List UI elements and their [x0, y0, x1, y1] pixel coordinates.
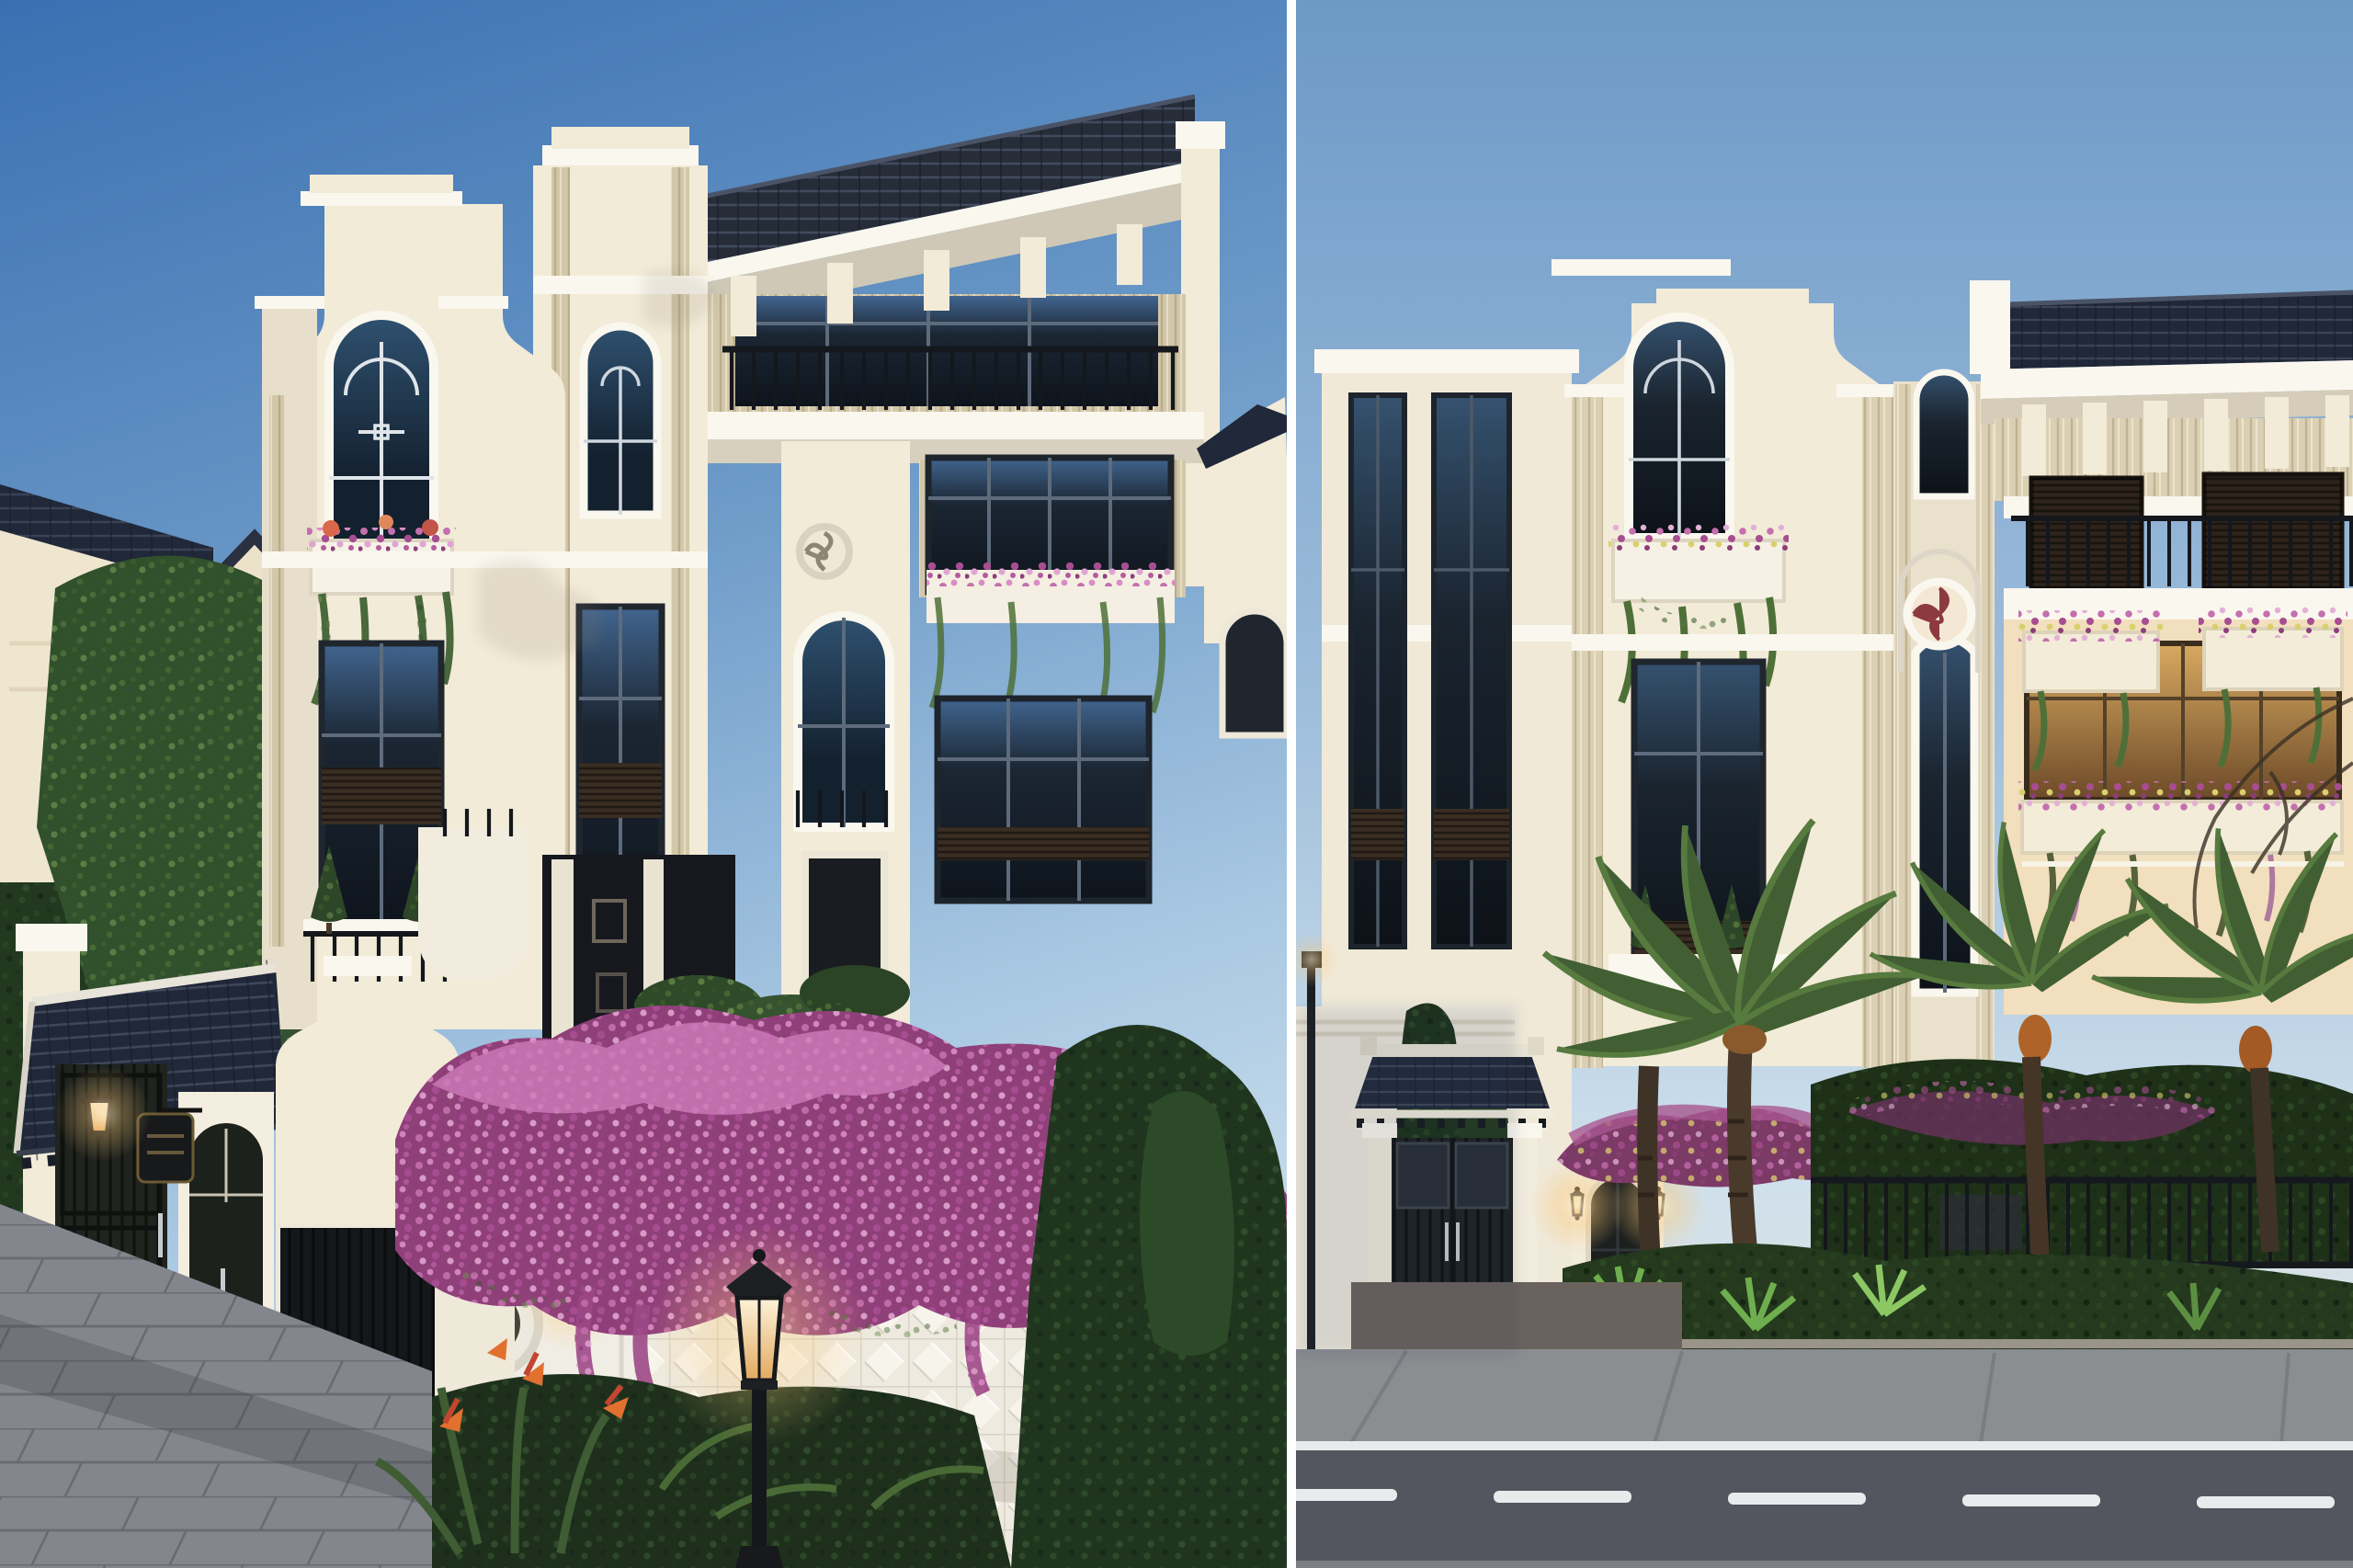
dusk-shadow [1296, 1006, 1517, 1356]
entrance-tower [781, 441, 910, 1029]
road-edge-line [1296, 1441, 2353, 1450]
sidewalk [1296, 1349, 2353, 1443]
asphalt-road [1296, 1450, 2353, 1568]
left-render-photo [0, 0, 1287, 1568]
right-render-svg [1296, 0, 2353, 1568]
right-render-photo [1296, 0, 2353, 1568]
road-bottom-strip [1296, 1561, 2353, 1568]
foreground-trees-right [1011, 1025, 1287, 1568]
two-panel-render-collage [0, 0, 2353, 1568]
left-render-svg [0, 0, 1287, 1568]
image-gutter [1287, 0, 1296, 1568]
